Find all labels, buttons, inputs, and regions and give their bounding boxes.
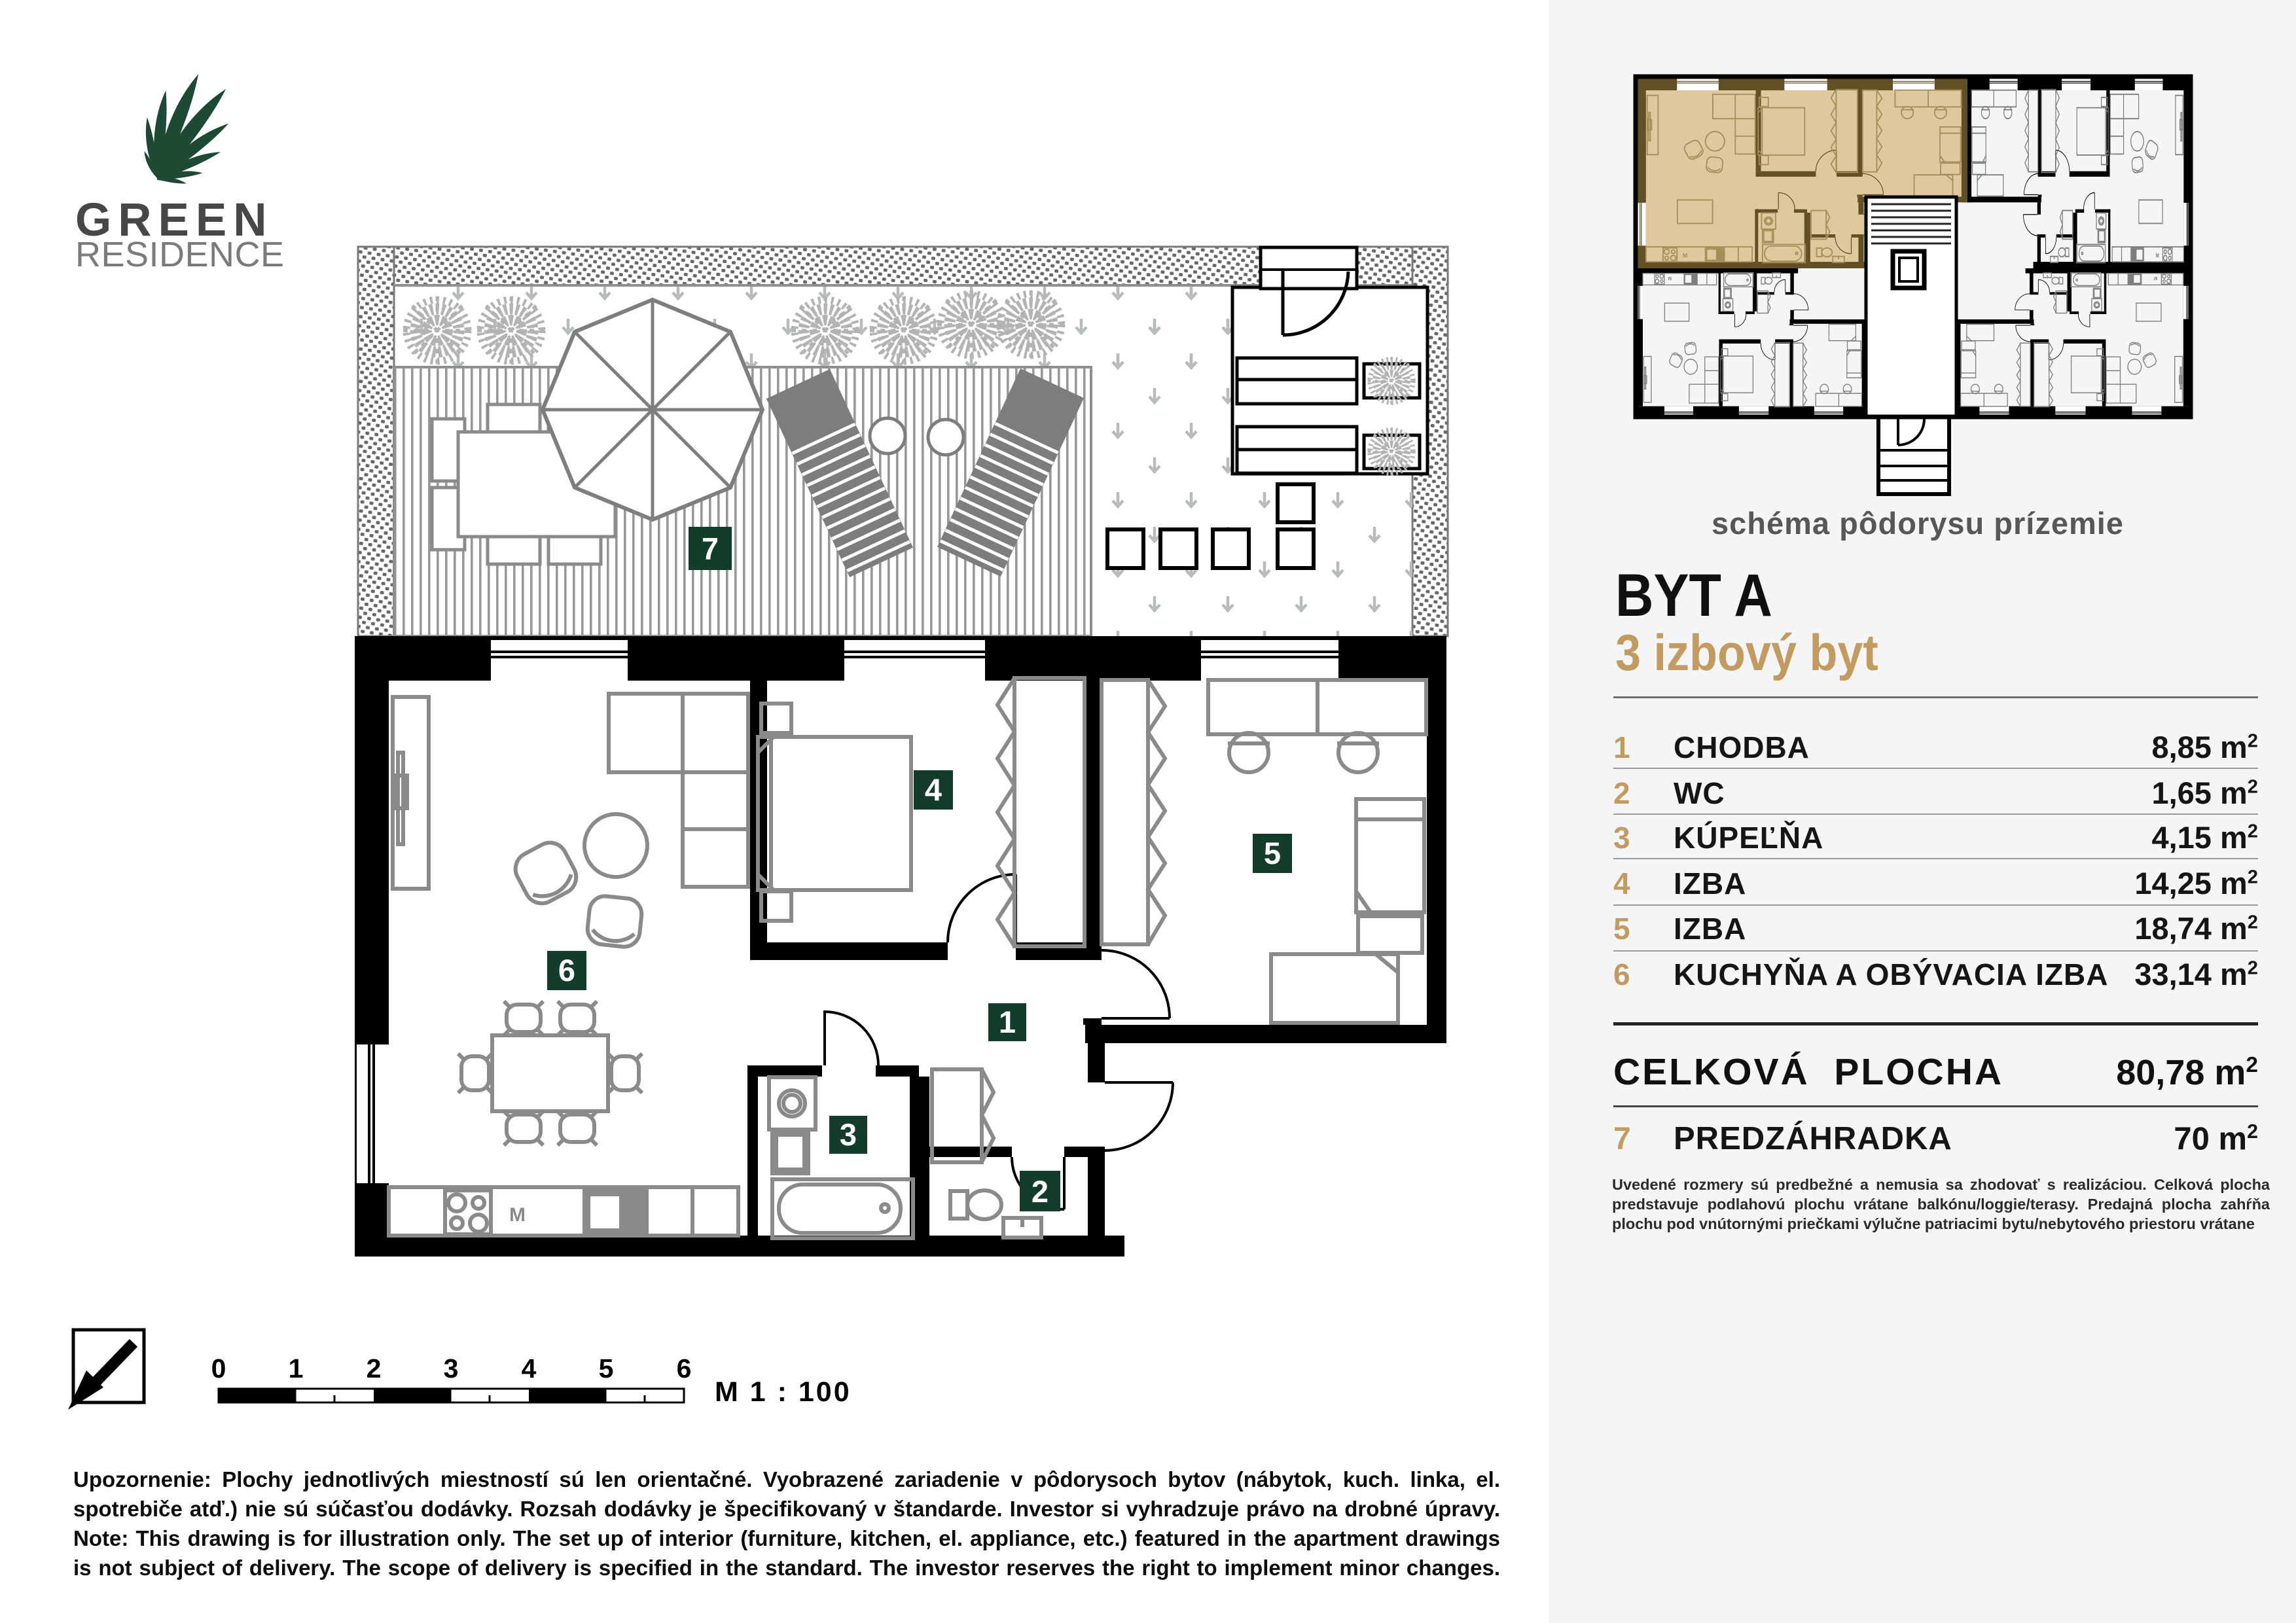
svg-text:1: 1 xyxy=(999,1005,1016,1039)
svg-text:6: 6 xyxy=(558,953,575,988)
svg-text:5: 5 xyxy=(599,1353,614,1383)
svg-text:2: 2 xyxy=(367,1353,382,1383)
svg-text:M 1 : 100: M 1 : 100 xyxy=(715,1376,852,1408)
svg-text:3: 3 xyxy=(444,1353,459,1383)
svg-text:7: 7 xyxy=(702,531,719,566)
svg-text:3: 3 xyxy=(840,1117,857,1152)
svg-text:4: 4 xyxy=(522,1353,537,1383)
svg-text:0: 0 xyxy=(211,1353,226,1383)
svg-text:1: 1 xyxy=(289,1353,304,1383)
svg-text:5: 5 xyxy=(1264,836,1281,870)
svg-text:6: 6 xyxy=(677,1353,692,1383)
svg-text:4: 4 xyxy=(925,772,942,807)
svg-text:2: 2 xyxy=(1031,1174,1049,1209)
